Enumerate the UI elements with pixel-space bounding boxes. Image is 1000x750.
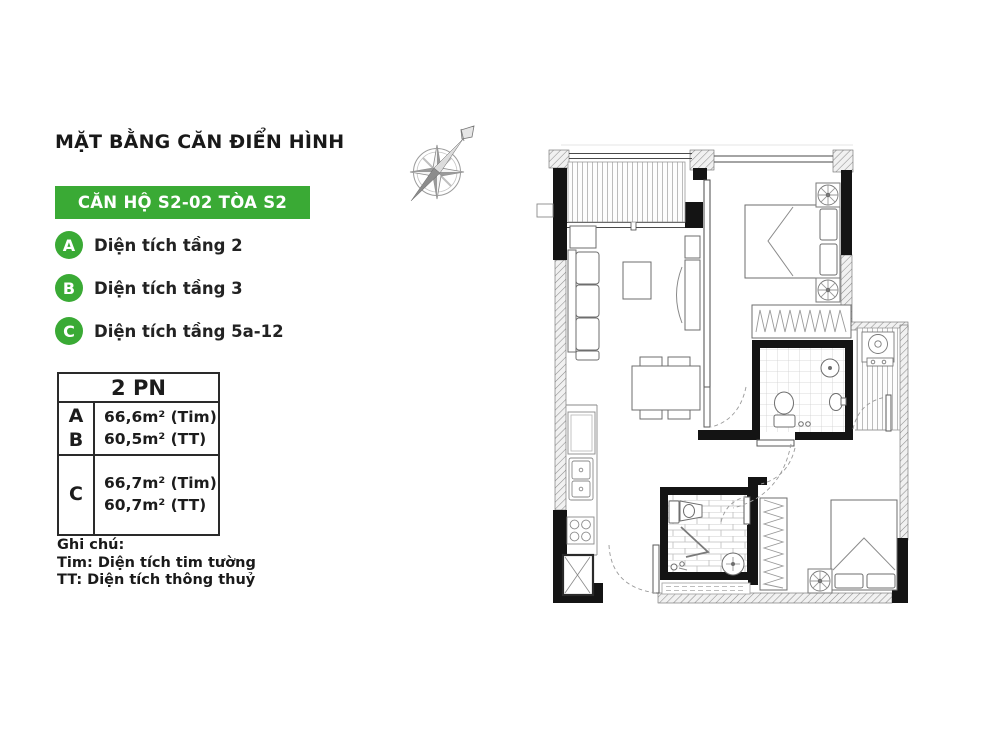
living-room <box>568 226 700 419</box>
door-leaf <box>744 497 750 524</box>
wardrobe-icon <box>760 498 787 590</box>
tv-cabinet-icon <box>677 236 701 330</box>
row-key: C <box>69 483 83 507</box>
shower-drain-icon <box>722 553 744 575</box>
footnote-title: Ghi chú: <box>57 537 256 555</box>
floorplan-drawing <box>535 140 915 615</box>
legend-label-c: Diện tích tầng 5a-12 <box>94 322 284 341</box>
unit-badge: CĂN HỘ S2-02 TÒA S2 <box>55 186 310 219</box>
coffee-table-icon <box>623 262 651 299</box>
dining-set-icon <box>632 357 700 419</box>
entry-threshold <box>662 583 750 594</box>
row-key: B <box>69 429 83 453</box>
legend-item-b: B Diện tích tầng 3 <box>55 274 284 302</box>
footnote-line: Tim: Diện tích tim tường <box>57 555 256 573</box>
page-title: MẶT BẰNG CĂN ĐIỂN HÌNH <box>55 131 344 153</box>
brochure-page: { "colors": { "accent_green": "#3aaa35",… <box>0 0 1000 750</box>
bed-icon <box>745 205 840 278</box>
row-keys: A B <box>59 403 95 454</box>
legend-label-b: Diện tích tầng 3 <box>94 279 243 298</box>
compass-rose-icon <box>398 124 476 212</box>
row-values: 66,7m² (Tim) 60,7m² (TT) <box>95 456 218 534</box>
bedroom-2 <box>760 498 897 593</box>
area-table: 2 PN A B 66,6m² (Tim) 60,5m² (TT) C 66,7… <box>57 372 220 536</box>
footnote-line: TT: Diện tích thông thuỷ <box>57 572 256 590</box>
table-row: A B 66,6m² (Tim) 60,5m² (TT) <box>59 403 218 456</box>
door-leaf <box>757 440 794 446</box>
fridge-icon <box>568 412 595 454</box>
row-keys: C <box>59 456 95 534</box>
legend-badge-c: C <box>55 317 83 345</box>
door-leaf <box>653 545 659 593</box>
side-table-icon <box>570 226 596 248</box>
footnotes: Ghi chú: Tim: Diện tích tim tường TT: Di… <box>57 537 256 590</box>
bathroom-2 <box>668 495 747 575</box>
sofa-icon <box>568 250 599 360</box>
area-value: 60,5m² (TT) <box>104 429 218 451</box>
toilet-icon <box>774 392 795 427</box>
water-heater-icon <box>862 332 894 366</box>
legend-item-c: C Diện tích tầng 5a-12 <box>55 317 284 345</box>
bed-icon <box>831 500 897 590</box>
area-table-header: 2 PN <box>59 374 218 403</box>
sink-icon <box>569 458 593 500</box>
wardrobe-icon <box>752 305 851 338</box>
legend-badge-b: B <box>55 274 83 302</box>
bathroom-1 <box>760 348 846 432</box>
legend-item-a: A Diện tích tầng 2 <box>55 231 284 259</box>
door-leaf <box>704 387 710 427</box>
ac-fan-icon <box>816 278 840 302</box>
area-value: 66,7m² (Tim) <box>104 473 218 495</box>
ac-fan-icon <box>808 569 832 593</box>
shaft-icon <box>563 555 593 595</box>
stove-icon <box>567 517 594 544</box>
area-value: 60,7m² (TT) <box>104 495 218 517</box>
row-key: A <box>69 405 84 429</box>
balcony-top <box>568 162 685 222</box>
ac-fan-icon <box>816 183 840 207</box>
door-leaf <box>886 395 891 431</box>
row-values: 66,6m² (Tim) 60,5m² (TT) <box>95 403 218 454</box>
balcony-side <box>855 328 900 430</box>
legend-label-a: Diện tích tầng 2 <box>94 236 243 255</box>
area-value: 66,6m² (Tim) <box>104 407 218 429</box>
legend: A Diện tích tầng 2 B Diện tích tầng 3 C … <box>55 231 284 360</box>
table-row: C 66,7m² (Tim) 60,7m² (TT) <box>59 456 218 534</box>
legend-badge-a: A <box>55 231 83 259</box>
bedroom-1 <box>745 183 851 338</box>
kitchen <box>563 405 597 595</box>
